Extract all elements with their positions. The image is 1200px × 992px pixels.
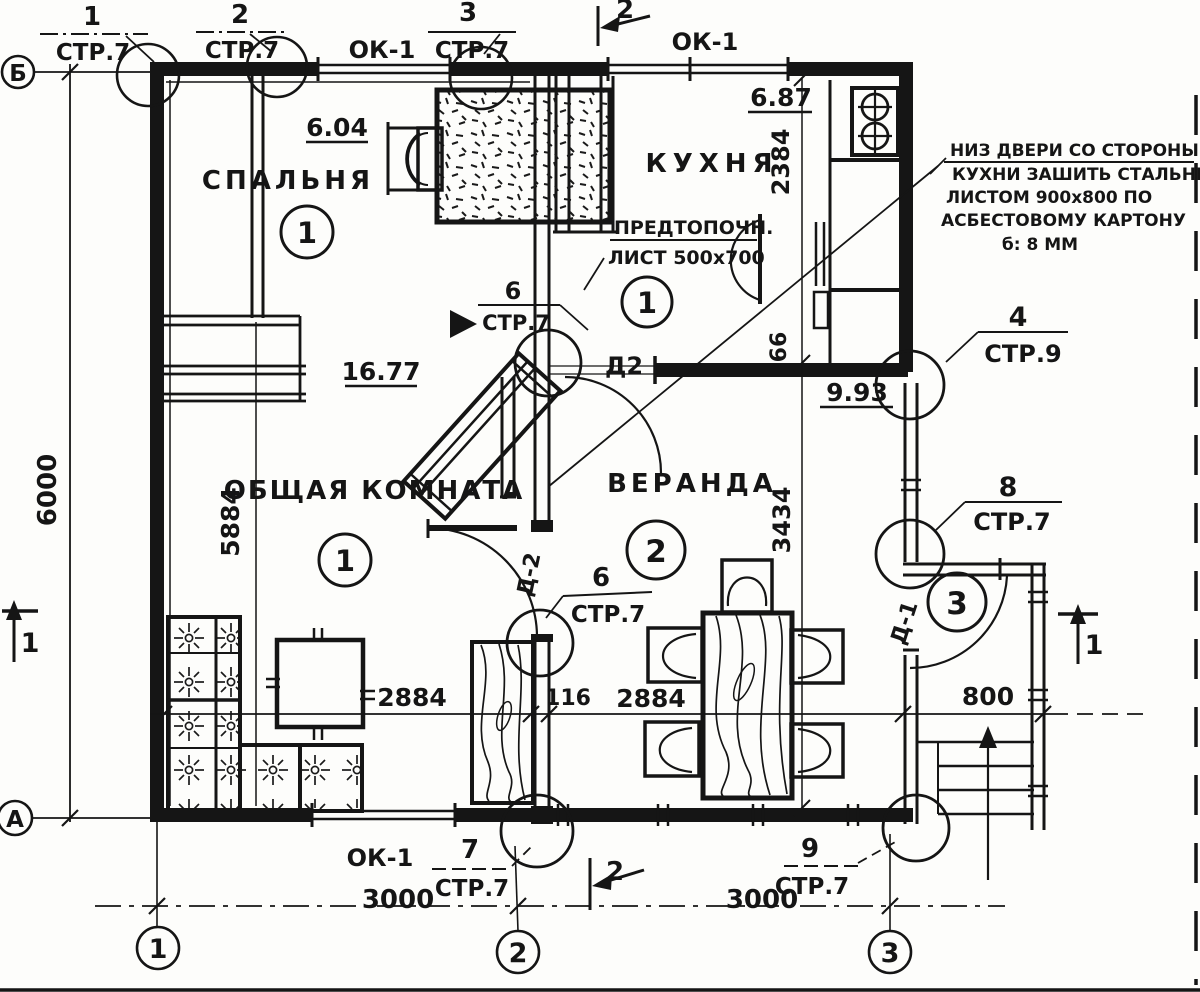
callout-6-stove-ref: СТР.7 — [482, 311, 550, 335]
room-kitchen-area: 6.87 — [750, 83, 812, 112]
dim-6000: 6000 — [33, 454, 63, 526]
left-bench — [164, 316, 306, 401]
door-note-line-5: б: 8 ММ — [1002, 235, 1078, 255]
window-label-bottom: ОК-1 — [347, 844, 414, 872]
floor-plan-drawing: Б А 1 2 3 СПАЛЬНЯ 6.04 1 КУХНЯ 6.87 1 ОБ… — [0, 0, 1200, 992]
room-kitchen-number: 1 — [637, 286, 657, 320]
room-entry-number: 3 — [946, 586, 968, 622]
section-2-top: 2 — [616, 0, 634, 25]
axis-3: 3 — [881, 938, 900, 969]
dim-2884-left: 2884 — [377, 683, 447, 712]
fire-sheet-note-1: ПРЕДТОПОЧН. — [614, 217, 773, 239]
room-veranda-area: 9.93 — [826, 378, 888, 407]
room-kitchen-label: КУХНЯ — [645, 149, 778, 179]
stove — [437, 90, 610, 222]
plan-canvas: Б А 1 2 3 СПАЛЬНЯ 6.04 1 КУХНЯ 6.87 1 ОБ… — [0, 0, 1200, 992]
callout-2-ref: СТР.7 — [205, 38, 279, 64]
axis-b: Б — [9, 61, 27, 87]
callout-2-num: 2 — [231, 0, 249, 30]
room-bedroom-number: 1 — [297, 216, 317, 250]
room-living-number: 1 — [335, 544, 355, 578]
door-note-line-1: НИЗ ДВЕРИ СО СТОРОНЫ — [950, 141, 1199, 161]
callout-9-num: 9 — [801, 834, 819, 864]
callout-6-door-num: 6 — [592, 563, 610, 593]
callout-9-ref: СТР.7 — [775, 874, 849, 900]
callout-1-ref: СТР.7 — [56, 40, 130, 66]
room-bedroom-area: 6.04 — [306, 113, 368, 142]
callout-7-ref: СТР.7 — [435, 876, 509, 902]
dim-800: 800 — [962, 682, 1014, 711]
door-note-line-2: КУХНИ ЗАШИТЬ СТАЛЬНЫМ — [952, 165, 1200, 185]
axis-2: 2 — [509, 938, 528, 969]
room-veranda-label: ВЕРАНДА — [607, 469, 777, 499]
section-1-right: 1 — [1085, 630, 1104, 661]
kitchen-counter — [814, 80, 899, 370]
callout-7-num: 7 — [461, 835, 479, 865]
room-veranda-number: 2 — [645, 534, 667, 570]
axis-1: 1 — [149, 934, 168, 965]
door-note-line-3: ЛИСТОМ 900х800 ПО — [946, 188, 1152, 208]
callout-6-stove-num: 6 — [505, 277, 522, 305]
room-living-area: 16.77 — [341, 357, 420, 386]
room-bedroom-label: СПАЛЬНЯ — [202, 166, 374, 196]
door-d2-label: Д2 — [605, 352, 643, 380]
living-table — [266, 628, 375, 740]
dim-116: 116 — [545, 686, 591, 711]
stairs-up-arrow-icon — [979, 726, 997, 748]
dim-3434: 3434 — [768, 487, 796, 554]
door-d1-rot-label: Д-1 — [886, 598, 923, 648]
door-note-line-4: АСБЕСТОВОМУ КАРТОНУ — [941, 211, 1186, 231]
callout-1-num: 1 — [83, 2, 101, 32]
callout-3-num: 3 — [459, 0, 477, 28]
dining-table-wood — [703, 613, 792, 798]
section-2-bottom: 2 — [606, 857, 624, 887]
dim-66: 66 — [767, 332, 792, 363]
section-1-left: 1 — [21, 628, 40, 659]
room-living-label: ОБЩАЯ КОМНАТА — [224, 476, 525, 506]
fire-sheet-note-2: ЛИСТ 500х700 — [608, 247, 765, 269]
room-number-circles — [281, 206, 986, 631]
callout-6-door-ref: СТР.7 — [571, 602, 645, 628]
callout-4-num: 4 — [1009, 302, 1028, 333]
bedroom-appliance — [388, 122, 442, 195]
callout-4-ref: СТР.9 — [984, 340, 1061, 368]
dim-5884: 5884 — [216, 487, 245, 557]
callout-3-ref: СТР.7 — [435, 38, 509, 64]
callout-8-ref: СТР.7 — [973, 508, 1050, 536]
axis-a: А — [6, 807, 24, 833]
door-d2-rot-label: Д-2 — [513, 551, 547, 599]
window-label-top-left: ОК-1 — [349, 36, 416, 64]
callout-8-num: 8 — [999, 472, 1018, 503]
dim-2384: 2384 — [767, 129, 795, 196]
dim-2884-right: 2884 — [616, 684, 686, 713]
window-label-top-right: ОК-1 — [672, 28, 739, 56]
dim-3000-left: 3000 — [362, 885, 434, 915]
gas-stove-icon — [852, 88, 898, 155]
